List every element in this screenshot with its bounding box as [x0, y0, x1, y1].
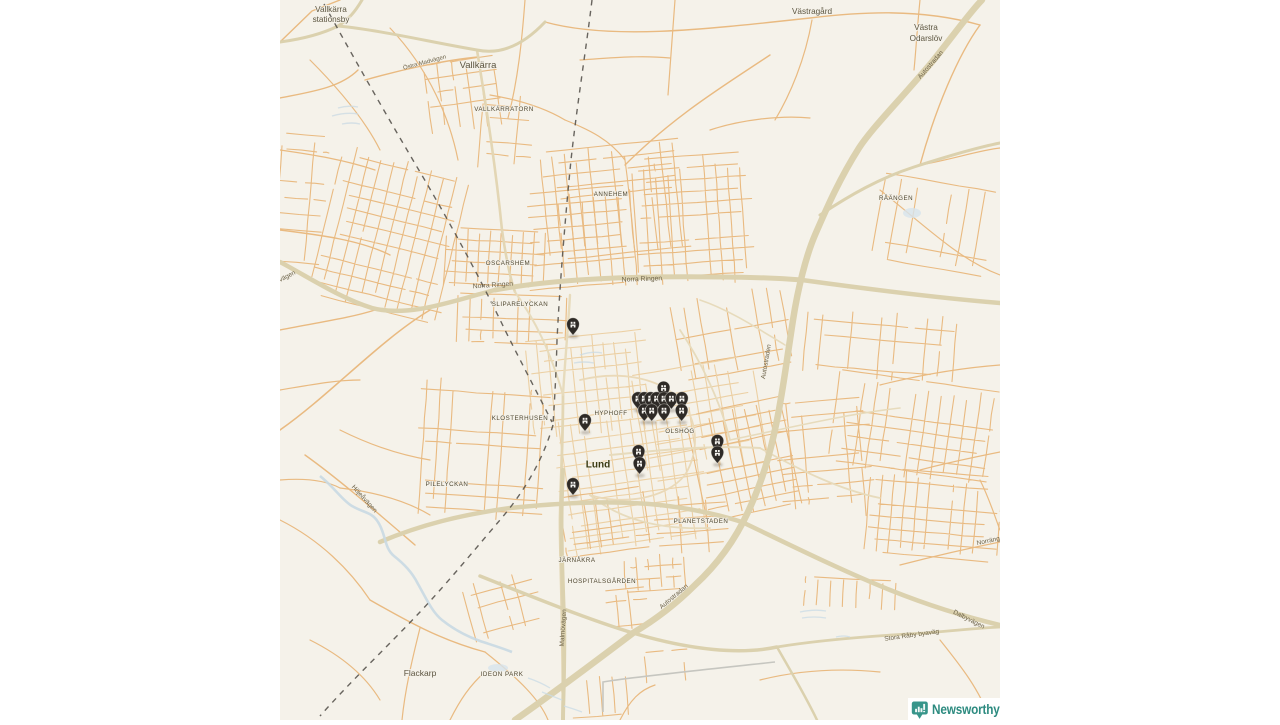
svg-text:JÄRNÅKRA: JÄRNÅKRA: [558, 557, 595, 564]
svg-text:IDEON PARK: IDEON PARK: [481, 671, 524, 678]
svg-text:Norra Ringen: Norra Ringen: [622, 275, 663, 283]
svg-text:Västragård: Västragård: [792, 6, 832, 16]
svg-text:Lund: Lund: [586, 460, 610, 471]
svg-text:PLANETSTADEN: PLANETSTADEN: [674, 518, 729, 525]
svg-text:Flackarp: Flackarp: [404, 668, 437, 678]
svg-text:Odarslöv: Odarslöv: [910, 34, 944, 43]
svg-text:Vallkärra: Vallkärra: [315, 5, 347, 14]
svg-text:VALLKÄRRATORN: VALLKÄRRATORN: [474, 106, 533, 113]
svg-text:RÅÄNGEN: RÅÄNGEN: [879, 195, 913, 202]
svg-text:KLOSTERHUSEN: KLOSTERHUSEN: [492, 415, 549, 422]
svg-text:ANNEHEM: ANNEHEM: [594, 191, 628, 198]
svg-text:PILELYCKAN: PILELYCKAN: [426, 481, 469, 488]
svg-text:HOSPITALSGÅRDEN: HOSPITALSGÅRDEN: [568, 578, 636, 585]
svg-text:Västra: Västra: [914, 23, 938, 32]
svg-text:OSCARSHEM: OSCARSHEM: [486, 260, 530, 267]
svg-text:HYPHOFF: HYPHOFF: [594, 410, 627, 417]
svg-text:stationsby: stationsby: [313, 15, 351, 24]
svg-text:OLSHÖG: OLSHÖG: [665, 428, 694, 435]
svg-text:Vallkärra: Vallkärra: [460, 60, 497, 71]
svg-text:SLIPARELYCKAN: SLIPARELYCKAN: [492, 301, 548, 308]
svg-text:Newsworthy: Newsworthy: [932, 701, 1001, 717]
